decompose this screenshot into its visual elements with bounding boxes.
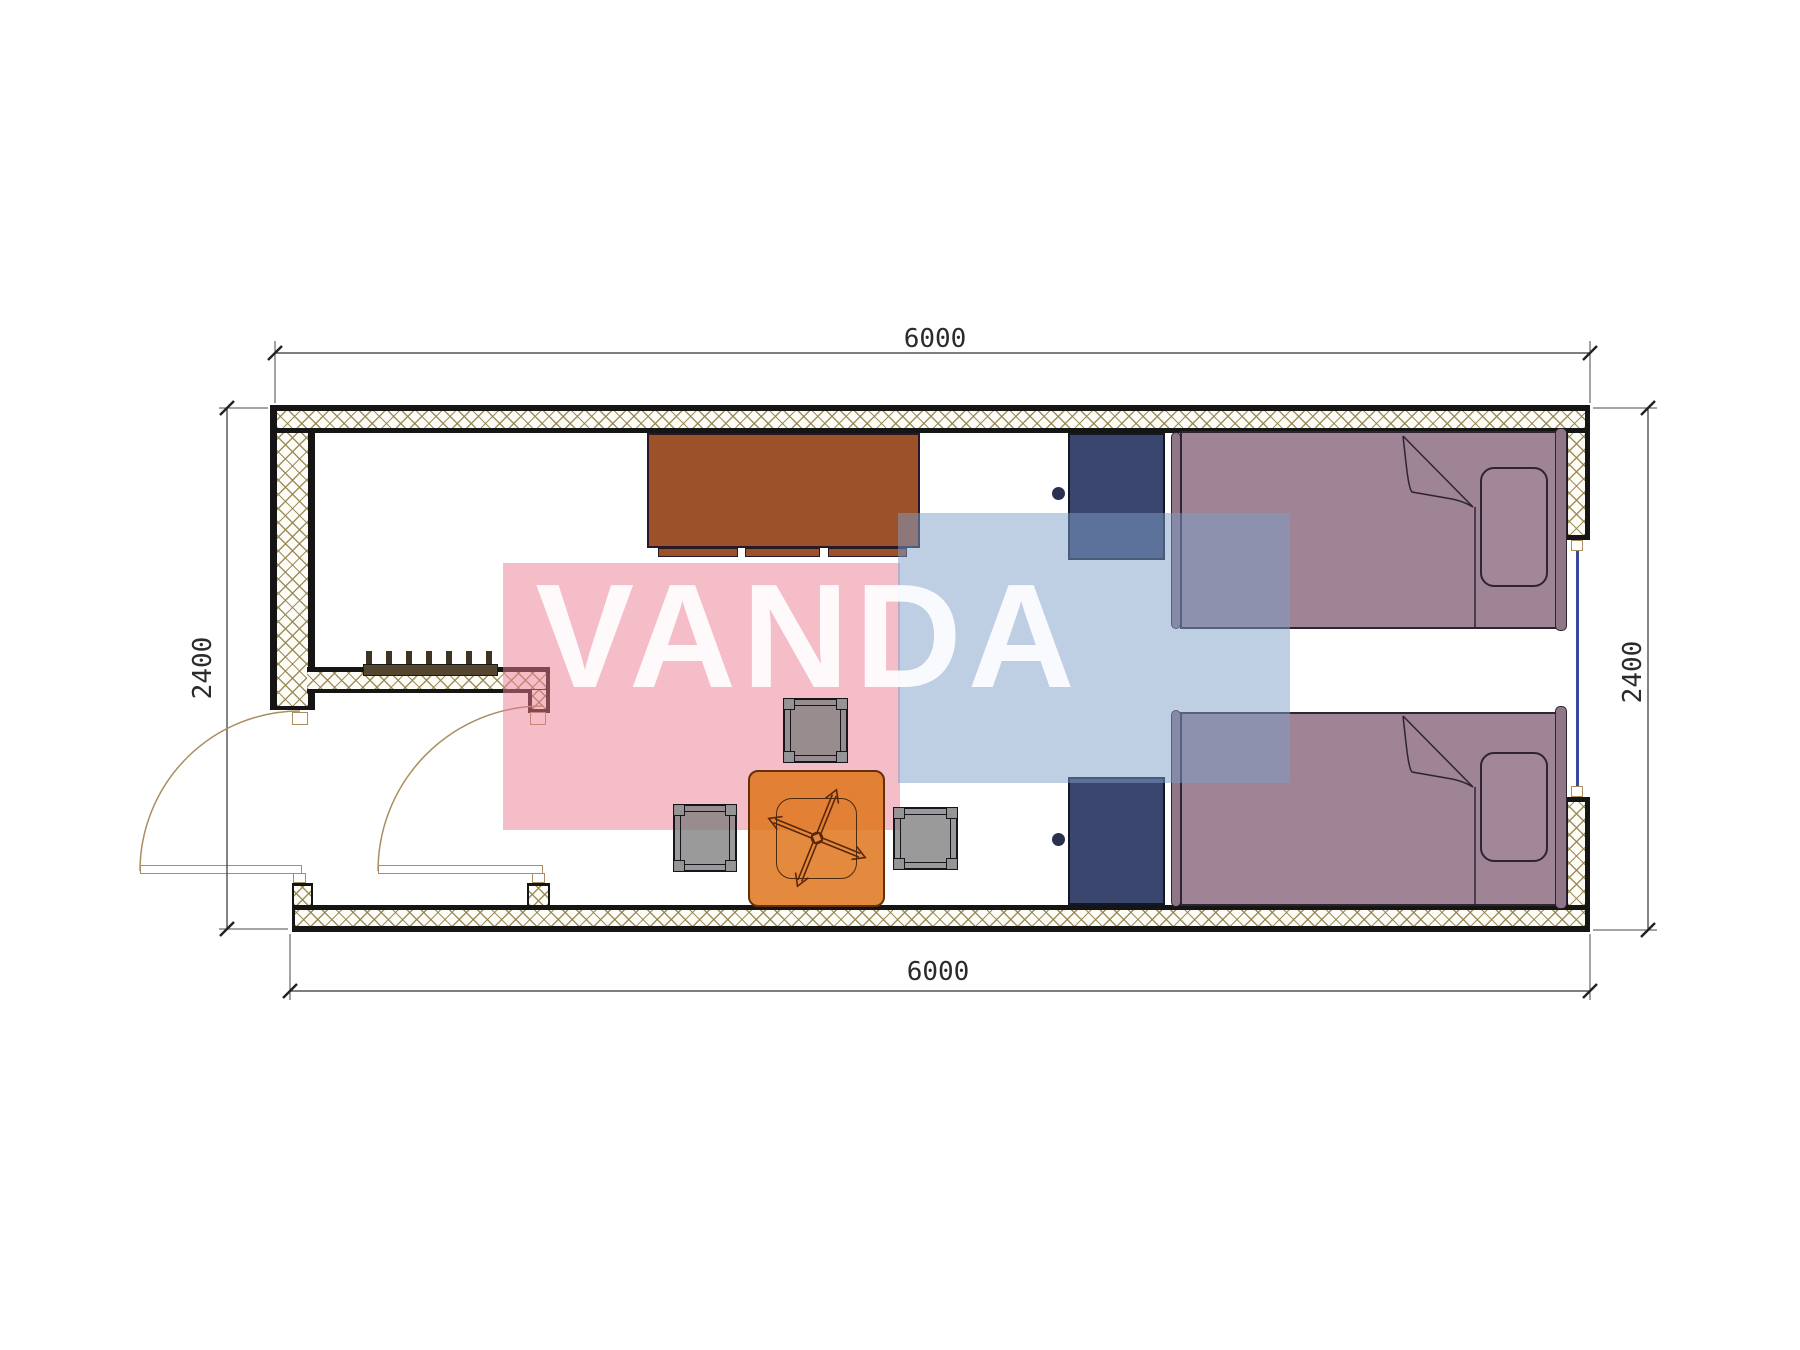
stool-right: [893, 807, 958, 870]
dimension-bottom: 6000: [907, 957, 970, 987]
dimension-top: 6000: [904, 324, 967, 354]
stool-top: [783, 698, 848, 763]
floor-plan-canvas: VANDA: [0, 0, 1800, 1350]
dimension-left: 2400: [188, 637, 218, 700]
table-cross-legs-icon: [748, 770, 885, 907]
watermark-text: VANDA: [500, 566, 1116, 708]
door-swing-arcs: [140, 706, 543, 871]
blanket-fold-lower: [1403, 716, 1475, 905]
dimension-right: 2400: [1618, 641, 1648, 704]
stool-left: [673, 804, 737, 872]
blanket-fold-upper: [1403, 436, 1475, 628]
